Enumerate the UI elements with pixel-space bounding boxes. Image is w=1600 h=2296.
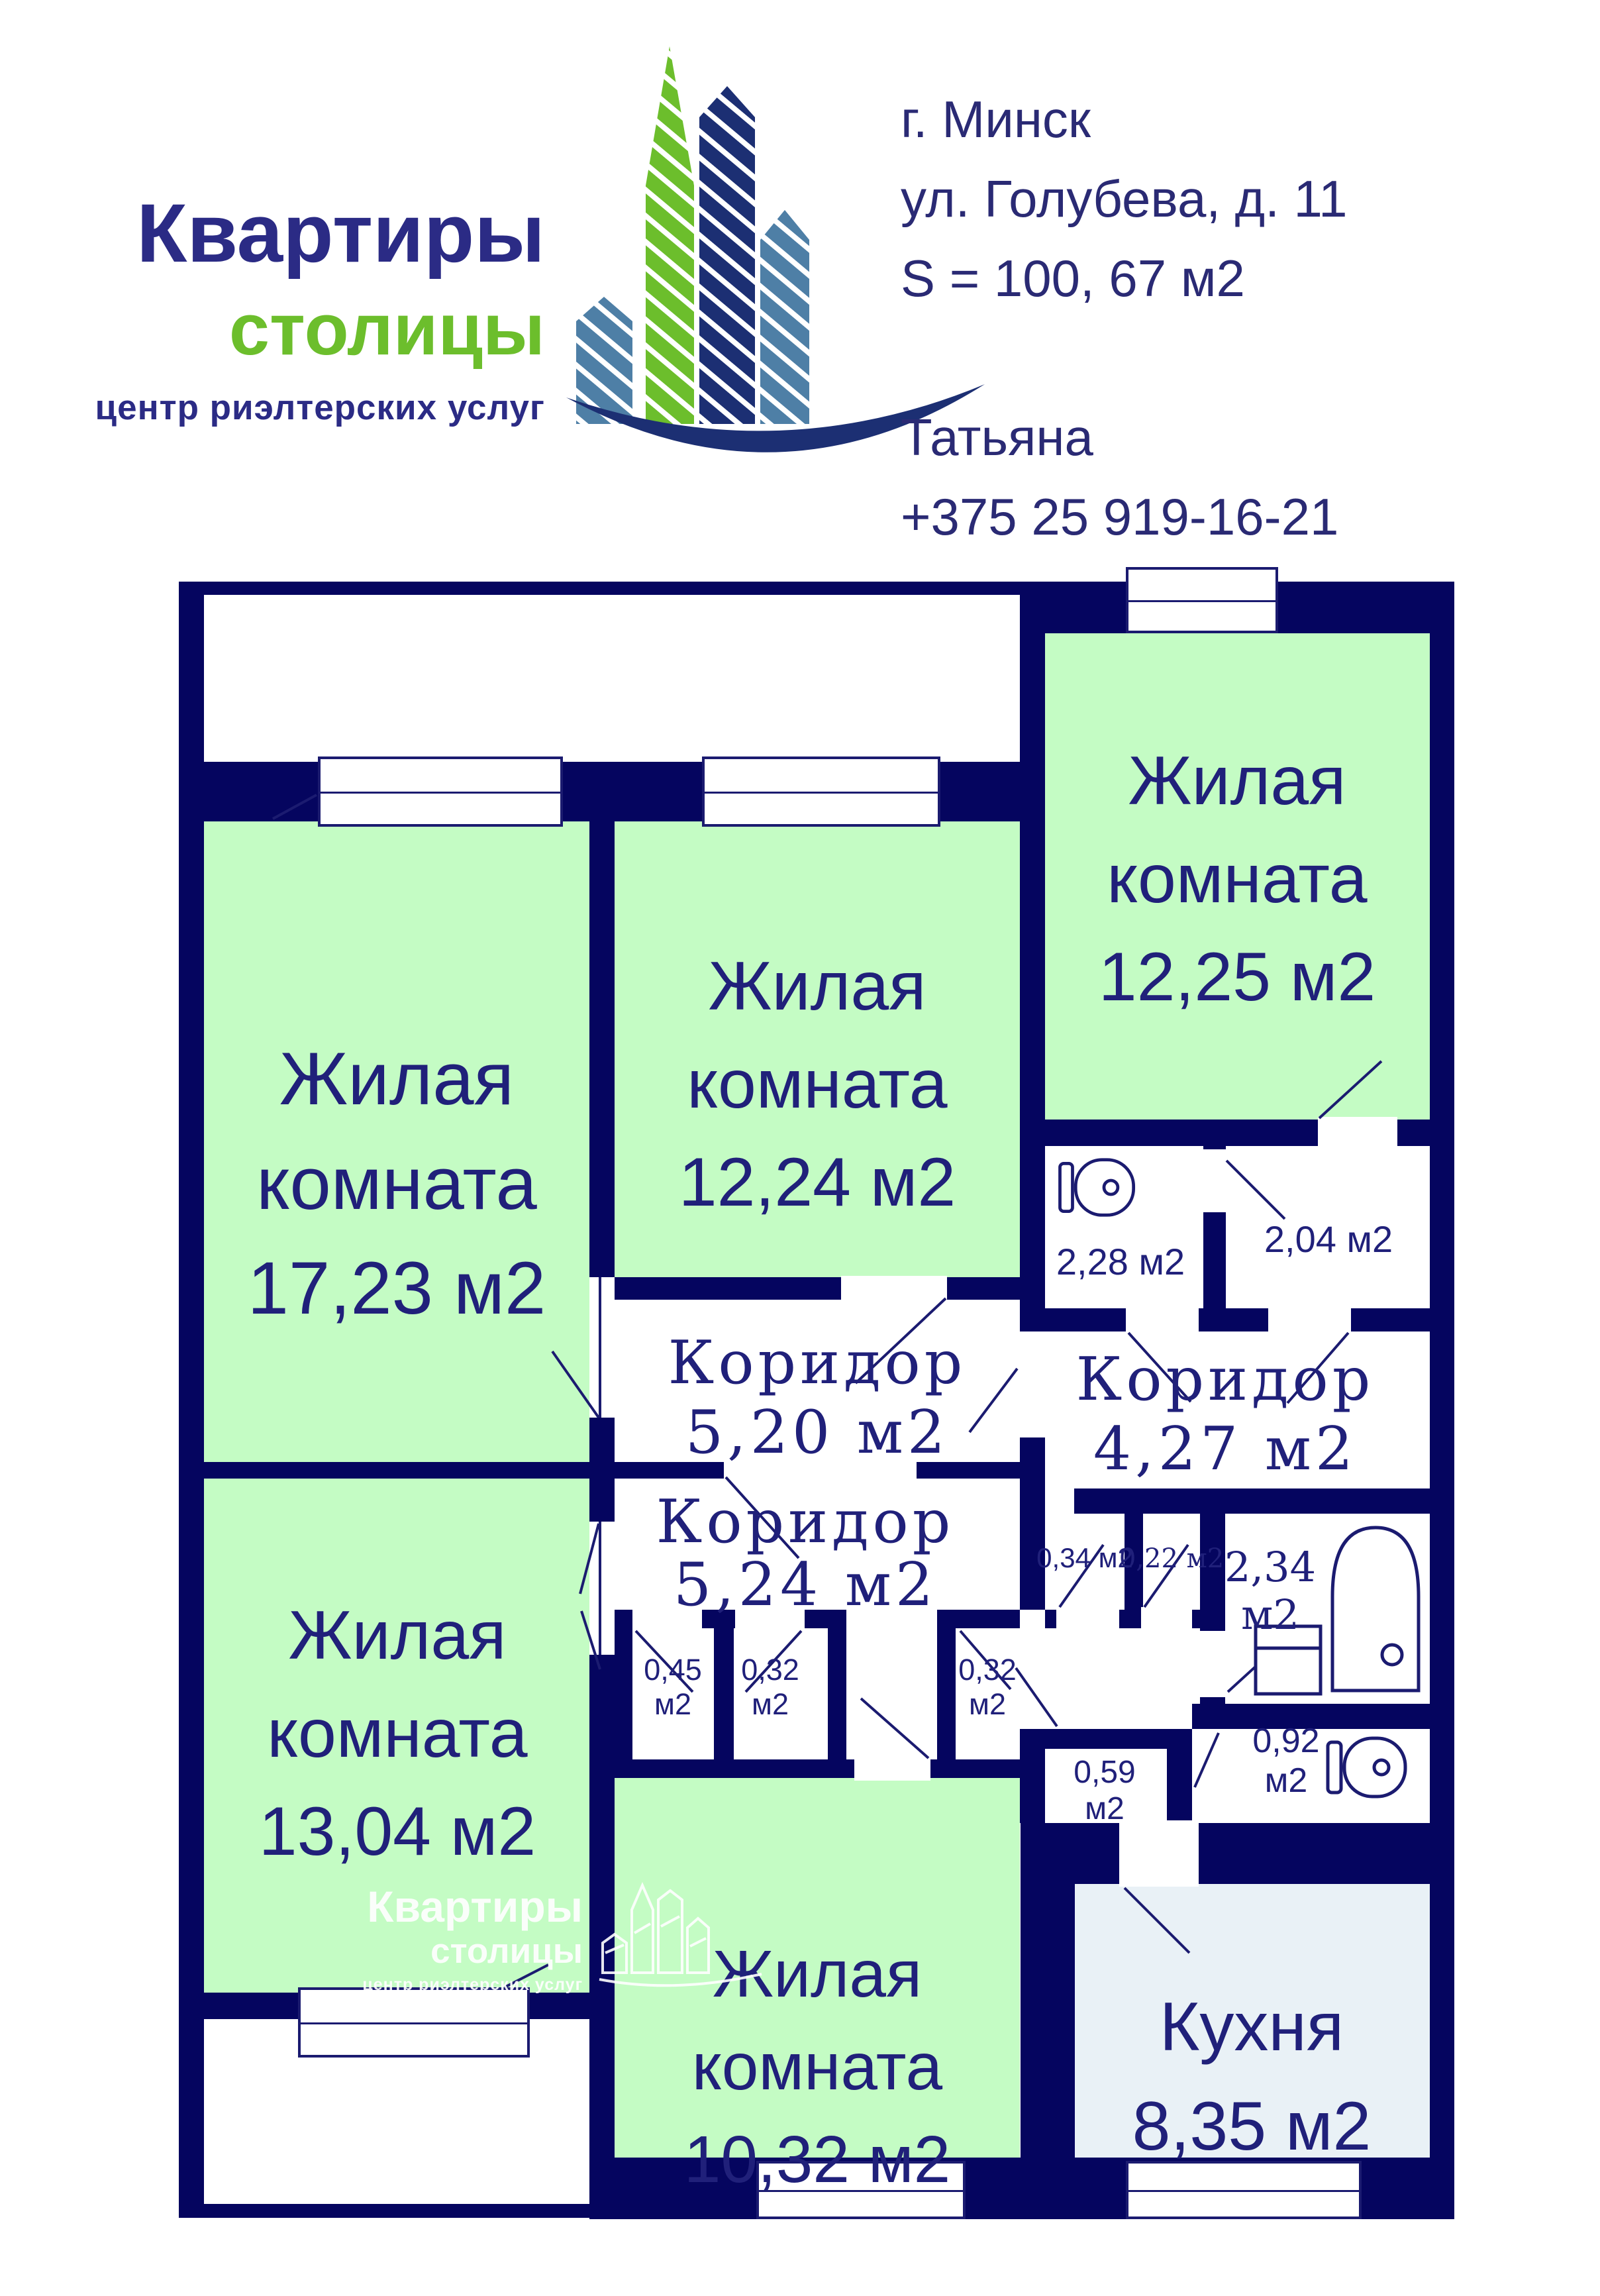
corridor-label-5-20: Коридор 5,20 м2: [668, 1328, 967, 1467]
storage-label-2-04: 2,04 м2: [1264, 1218, 1393, 1261]
toilet-icon: [1325, 1734, 1411, 1800]
flyer-page: Квартиры столицы центр риэлтерских услуг…: [0, 0, 1600, 2296]
corridor-label-4-27: Коридор 4,27 м2: [1076, 1345, 1375, 1484]
bathtub-icon: [1326, 1522, 1425, 1696]
wc-label-2-28: 2,28 м2: [1056, 1240, 1185, 1283]
toilet-icon: [1056, 1156, 1139, 1219]
watermark-logo: Квартиры столицы центр риэлтерских услуг: [265, 1885, 583, 1993]
closet-label-0-59: 0,59 м2: [1074, 1754, 1135, 1827]
watermark-subtitle: столицы: [265, 1934, 583, 1969]
corridor-label-5-24: Коридор 5,24 м2: [656, 1490, 955, 1616]
room-label-13-04: Жилая комната 13,04 м2: [259, 1587, 536, 1881]
closet-label-0-32-a: 0,32 м2: [741, 1653, 799, 1722]
watermark-tagline: центр риэлтерских услуг: [265, 1977, 583, 1993]
room-label-kitchen: Кухня 8,35 м2: [1132, 1977, 1372, 2176]
closet-label-0-22: 0,22 м2: [1119, 1543, 1224, 1574]
bath-label-2-34: 2,34 м2: [1225, 1543, 1316, 1639]
closet-label-0-32-b: 0,32 м2: [958, 1653, 1017, 1722]
wc-label-0-92: 0,92 м2: [1252, 1721, 1319, 1800]
closet-label-0-45: 0,45 м2: [644, 1653, 702, 1722]
room-label-17-23: Жилая комната 17,23 м2: [248, 1027, 546, 1341]
room-label-12-25: Жилая комната 12,25 м2: [1099, 732, 1376, 1026]
room-label-12-24: Жилая комната 12,24 м2: [679, 937, 956, 1231]
watermark-title: Квартиры: [265, 1885, 583, 1928]
watermark-building-icon: [596, 1880, 768, 1996]
